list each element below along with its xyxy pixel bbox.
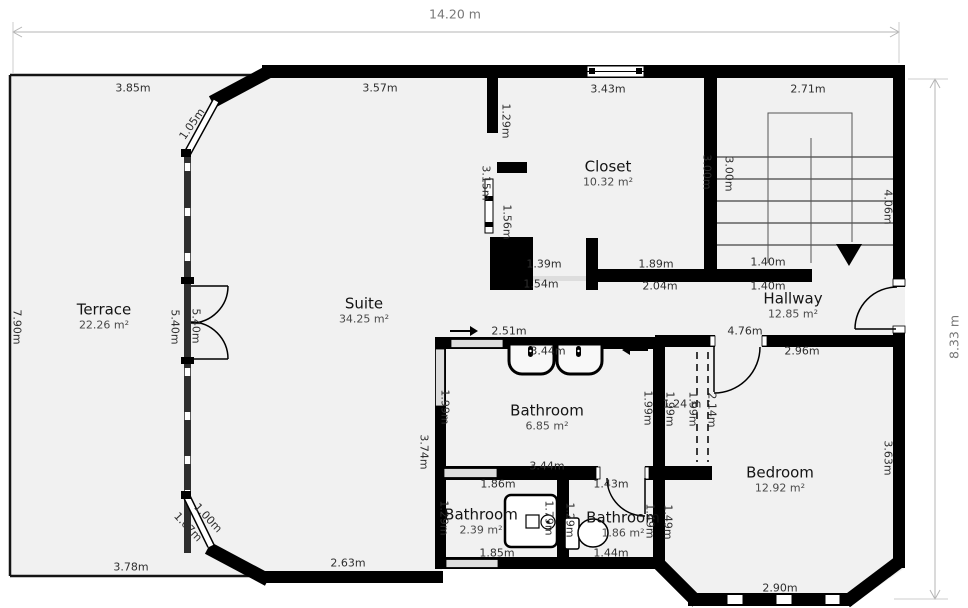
room-name: Bathroom: [444, 505, 518, 523]
room-name: Hallway: [763, 289, 822, 307]
room-area: 1.86 m²: [586, 526, 660, 539]
room-label-closet: Closet 10.32 m²: [583, 157, 633, 188]
dim-label: 3.74m: [418, 434, 431, 469]
dim-label: 3.00m: [723, 156, 736, 191]
dim-label: 1.99m: [642, 390, 655, 425]
dim-label: 3.78m: [113, 561, 148, 574]
room-label-terrace: Terrace 22.26 m²: [77, 300, 132, 331]
dim-label: 1.86m: [480, 478, 515, 491]
dim-label: 2.71m: [790, 83, 825, 96]
dim-label: 3.85m: [115, 82, 150, 95]
dim-label: 3.15m: [480, 165, 493, 200]
room-label-bathroom-left: Bathroom 2.39 m²: [444, 505, 518, 536]
dim-label: 1.29m: [500, 103, 513, 138]
dim-label: 2.51m: [491, 325, 526, 338]
dim-label: 3.44m: [529, 460, 564, 473]
room-label-hallway: Hallway 12.85 m²: [763, 289, 822, 320]
room-name: Bathroom: [510, 401, 584, 419]
dim-label: 1.44m: [593, 547, 628, 560]
room-label-suite: Suite 34.25 m²: [339, 294, 389, 325]
room-area: 22.26 m²: [77, 318, 132, 331]
dim-label: 3.44m: [530, 345, 565, 358]
room-name: Terrace: [77, 300, 132, 318]
room-area: 2.39 m²: [444, 523, 518, 536]
dim-label: 2.90m: [762, 582, 797, 595]
dim-label: 5.40m: [190, 308, 203, 343]
dim-label: 2.14m: [706, 392, 719, 427]
room-area: 12.85 m²: [763, 307, 822, 320]
dim-label: 1.39m: [526, 258, 561, 271]
dim-label: 1.79m: [543, 500, 556, 535]
dim-label: 1.54m: [523, 278, 558, 291]
window-divider: [444, 469, 497, 478]
room-area: 12.92 m²: [746, 481, 814, 494]
window-top: [587, 66, 644, 77]
room-area: 6.85 m²: [510, 419, 584, 432]
room-label-bedroom: Bedroom 12.92 m²: [746, 463, 814, 494]
dim-label: 2.63m: [330, 557, 365, 570]
dim-label: 1.89m: [638, 258, 673, 271]
dim-label: 1.43m: [593, 478, 628, 491]
dim-label: 1.99m: [687, 391, 700, 426]
dim-label: 4.76m: [727, 325, 762, 338]
floor-plan: 14.20 m 8.33 m 3.85m 3.57m 3.43m 2.71m 1…: [0, 0, 968, 608]
dim-label: 4.06m: [882, 189, 895, 224]
dim-label: 1.29m: [564, 502, 577, 537]
dim-label: 5.40m: [169, 309, 182, 344]
room-name: Suite: [339, 294, 389, 312]
dim-label: 2.04m: [642, 280, 677, 293]
dim-label: 1.49m: [662, 504, 675, 539]
dim-label: 1.40m: [750, 256, 785, 269]
dim-label: 3.57m: [362, 82, 397, 95]
room-label-bathroom-right: Bathroom 1.86 m²: [586, 508, 660, 539]
room-area: 10.32 m²: [583, 175, 633, 188]
window-bathroom-south: [446, 560, 498, 568]
room-label-bathroom-main: Bathroom 6.85 m²: [510, 401, 584, 432]
room-name: Bedroom: [746, 463, 814, 481]
dim-label: 1.99m: [439, 389, 452, 424]
room-name: Closet: [583, 157, 633, 175]
dim-label: 1.85m: [479, 547, 514, 560]
dim-label: 3.63m: [882, 440, 895, 475]
dim-label: 1.56m: [501, 204, 514, 239]
dim-label: 7.90m: [11, 309, 24, 344]
dim-label: 3.00m: [701, 154, 714, 189]
dim-label: 2.96m: [784, 345, 819, 358]
dim-label: 3.43m: [590, 83, 625, 96]
window-bathroom-north: [451, 340, 503, 348]
room-name: Bathroom: [586, 508, 660, 526]
room-area: 34.25 m²: [339, 312, 389, 325]
overall-width-label: 14.20 m: [429, 7, 481, 22]
overall-height-label: 8.33 m: [947, 315, 962, 359]
